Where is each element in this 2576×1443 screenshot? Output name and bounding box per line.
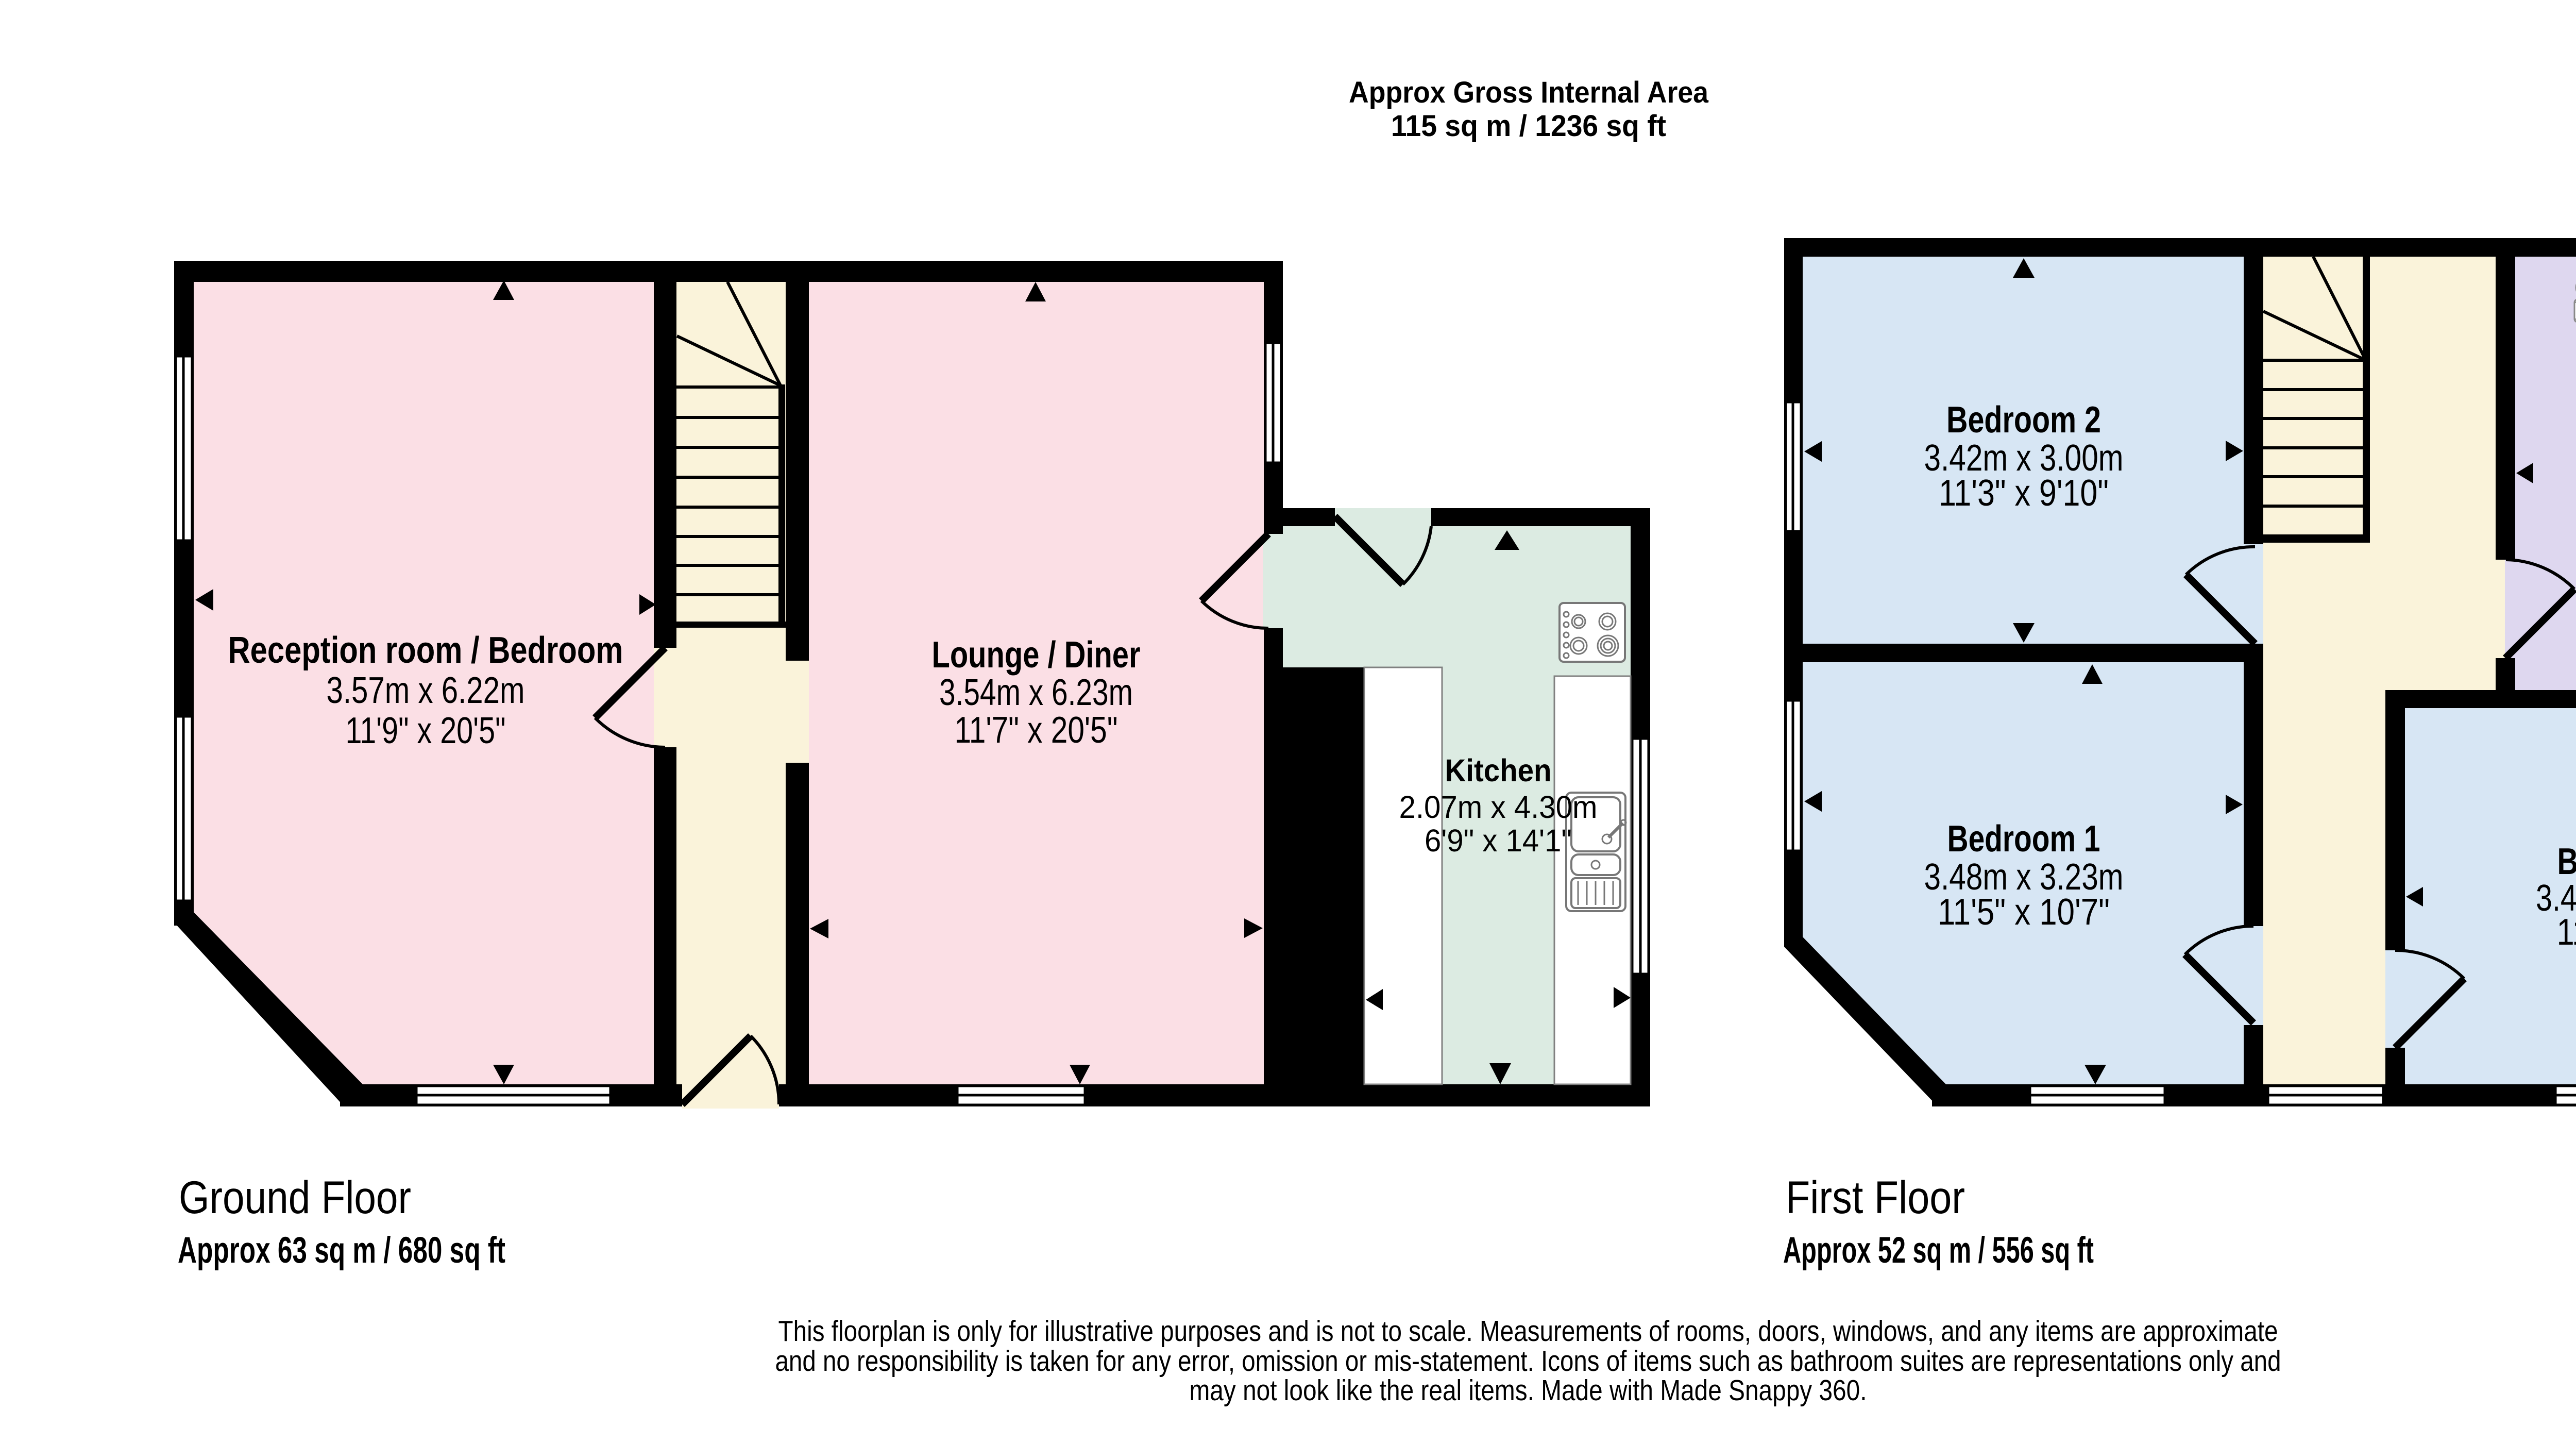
svg-text:Bedroom 1: Bedroom 1	[1947, 818, 2100, 860]
svg-text:Kitchen: Kitchen	[1445, 753, 1552, 788]
svg-text:Ground Floor: Ground Floor	[179, 1171, 411, 1223]
svg-text:11'9" x 20'5": 11'9" x 20'5"	[346, 710, 506, 751]
svg-text:11'3" x 9'10": 11'3" x 9'10"	[1939, 473, 2109, 514]
svg-text:Lounge / Diner: Lounge / Diner	[932, 634, 1141, 676]
svg-text:and no responsibility is taken: and no responsibility is taken for any e…	[775, 1345, 2281, 1378]
svg-text:11'4" x 9'4": 11'4" x 9'4"	[2557, 912, 2576, 953]
svg-text:2.07m x 4.30m: 2.07m x 4.30m	[1399, 790, 1598, 825]
svg-text:Bedroom 2: Bedroom 2	[1946, 399, 2101, 441]
svg-text:This floorplan is only for ill: This floorplan is only for illustrative …	[778, 1315, 2278, 1348]
svg-text:115 sq m / 1236 sq ft: 115 sq m / 1236 sq ft	[1391, 109, 1666, 143]
svg-text:Bedroom 3: Bedroom 3	[2557, 841, 2576, 882]
svg-text:3.57m x 6.22m: 3.57m x 6.22m	[327, 670, 525, 711]
svg-text:Approx 52 sq m / 556 sq ft: Approx 52 sq m / 556 sq ft	[1783, 1230, 2094, 1271]
svg-text:11'5" x 10'7": 11'5" x 10'7"	[1938, 892, 2110, 933]
svg-text:Approx Gross Internal Area: Approx Gross Internal Area	[1349, 76, 1709, 109]
svg-text:may not look like the real ite: may not look like the real items. Made w…	[1190, 1374, 1867, 1407]
svg-text:3.54m x 6.23m: 3.54m x 6.23m	[939, 672, 1133, 713]
svg-text:11'7" x 20'5": 11'7" x 20'5"	[955, 710, 1118, 751]
svg-text:6'9" x 14'1": 6'9" x 14'1"	[1425, 823, 1572, 858]
svg-text:Reception room / Bedroom: Reception room / Bedroom	[228, 630, 623, 671]
svg-text:Approx 63 sq m / 680 sq ft: Approx 63 sq m / 680 sq ft	[178, 1230, 505, 1271]
svg-text:First Floor: First Floor	[1786, 1171, 1965, 1223]
